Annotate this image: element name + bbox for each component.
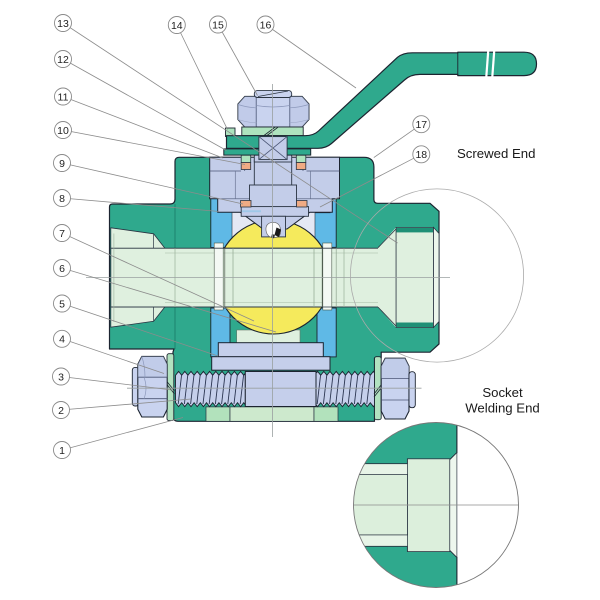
svg-text:18: 18 [415, 149, 427, 161]
svg-text:Socket: Socket [482, 385, 523, 400]
svg-text:9: 9 [59, 158, 65, 170]
svg-text:16: 16 [260, 19, 272, 31]
svg-text:1: 1 [59, 445, 65, 457]
svg-text:13: 13 [57, 18, 69, 30]
svg-text:7: 7 [59, 228, 65, 240]
svg-text:4: 4 [59, 334, 65, 346]
svg-text:2: 2 [58, 405, 64, 417]
svg-text:5: 5 [59, 298, 65, 310]
svg-text:15: 15 [212, 19, 224, 31]
svg-text:11: 11 [58, 91, 69, 103]
svg-text:17: 17 [415, 119, 427, 131]
svg-text:12: 12 [57, 54, 69, 66]
svg-text:Welding End: Welding End [465, 401, 540, 416]
svg-text:3: 3 [58, 371, 64, 383]
svg-text:14: 14 [171, 20, 183, 32]
svg-text:6: 6 [59, 263, 65, 275]
svg-text:10: 10 [57, 125, 69, 137]
svg-text:8: 8 [59, 193, 65, 205]
svg-text:Screwed End: Screwed End [457, 146, 535, 161]
